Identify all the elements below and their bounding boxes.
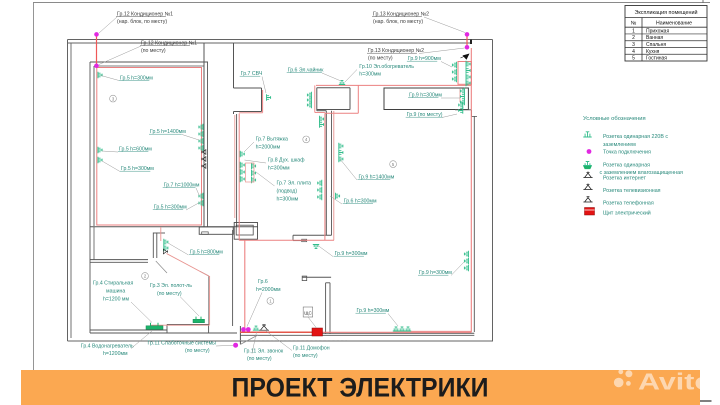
svg-text:Гр.7 Вытяжка: Гр.7 Вытяжка [256,137,288,143]
svg-text:Гр.6 Эл.чайник: Гр.6 Эл.чайник [288,67,324,74]
svg-text:Кухня: Кухня [646,49,660,55]
svg-text:(по месту): (по месту) [247,356,272,362]
svg-text:(по месту): (по месту) [157,291,182,297]
svg-text:1: 1 [632,28,635,34]
svg-text:Avito: Avito [638,369,713,395]
svg-text:Розетка одинарная: Розетка одинарная [603,163,650,169]
svg-text:2: 2 [632,35,635,41]
svg-text:Гостиная: Гостиная [646,56,667,62]
svg-text:4: 4 [632,49,635,55]
svg-text:(подвод): (подвод) [277,189,298,195]
svg-text:Точка подключения: Точка подключения [603,150,651,156]
svg-text:Гр.8 Дух. шкаф: Гр.8 Дух. шкаф [268,158,305,164]
svg-text:h=1200мм: h=1200мм [103,351,128,357]
svg-text:заземлением: заземлением [603,142,636,148]
svg-text:ЩС: ЩС [304,311,312,316]
svg-text:Розетка телефонная: Розетка телефонная [603,201,654,207]
svg-text:5: 5 [632,56,635,62]
svg-text:(нар. блок, по месту): (нар. блок, по месту) [373,19,423,25]
svg-text:Гр.11 Домофон: Гр.11 Домофон [293,346,330,352]
svg-text:Экспликация помещений: Экспликация помещений [634,9,697,16]
svg-text:Наименование: Наименование [656,21,692,27]
svg-text:h=300мм: h=300мм [359,72,381,78]
svg-text:(по месту): (по месту) [368,56,393,62]
svg-text:h=1200 мм: h=1200 мм [103,297,129,303]
svg-text:машина: машина [106,289,125,295]
svg-text:Розетка одинарная 220В с: Розетка одинарная 220В с [603,134,668,140]
svg-text:Розетка телевизионная: Розетка телевизионная [603,188,661,194]
svg-text:(нар. блок, по месту): (нар. блок, по месту) [117,19,167,25]
svg-text:h=300мм: h=300мм [277,197,299,203]
svg-text:№: № [631,21,637,27]
svg-text:Спальня: Спальня [646,42,666,48]
svg-text:(по месту): (по месту) [141,48,166,54]
svg-text:Гр.3 Эл. полот-ль: Гр.3 Эл. полот-ль [150,283,192,289]
svg-text:3: 3 [632,42,635,48]
svg-text:(по месту): (по месту) [185,348,210,354]
svg-text:ПРОЕКТ ЭЛЕКТРИКИ: ПРОЕКТ ЭЛЕКТРИКИ [232,372,489,402]
svg-text:Гр.11 Слаботочные системы: Гр.11 Слаботочные системы [148,341,217,347]
svg-text:Гр.7 Эл. плита: Гр.7 Эл. плита [277,181,312,187]
svg-text:Условные обозначения: Условные обозначения [583,116,646,122]
svg-text:Розетка интернет: Розетка интернет [603,176,646,182]
svg-text:Ванная: Ванная [646,35,663,41]
svg-text:h=2000мм: h=2000мм [256,145,281,151]
svg-text:Гр.4 Стиральная: Гр.4 Стиральная [93,281,133,287]
svg-text:Гр.11 Эл. звонок: Гр.11 Эл. звонок [244,349,284,355]
svg-text:Гр.10 Эл.обогреватель: Гр.10 Эл.обогреватель [359,64,414,70]
svg-text:Гр.6: Гр.6 [258,279,268,285]
svg-text:h=300мм: h=300мм [268,166,290,172]
svg-text:Гр.4 Водонагреватель: Гр.4 Водонагреватель [81,344,134,350]
svg-text:Прихожая: Прихожая [646,28,669,34]
svg-text:h=2000мм: h=2000мм [256,287,281,293]
svg-text:(по месту): (по месту) [293,353,318,359]
svg-text:Щит электрический: Щит электрический [603,210,651,217]
